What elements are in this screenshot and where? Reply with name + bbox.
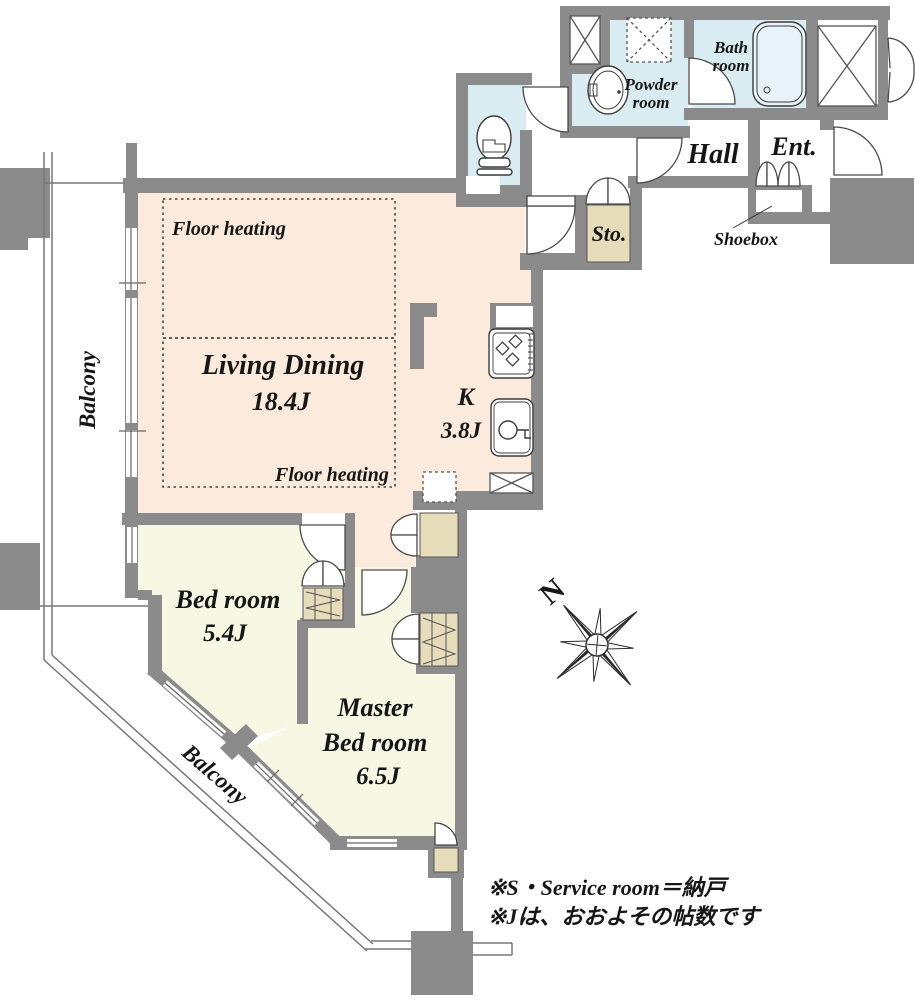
kitchen-sink-icon — [491, 399, 533, 456]
powder-room-label-1: Powder — [624, 75, 678, 94]
shoebox-bifold-doors — [756, 162, 800, 186]
bedroom-label: Bed room — [175, 585, 281, 614]
toilet-door — [523, 87, 568, 132]
living-dining-label: Living Dining — [201, 350, 365, 381]
toilet-icon — [477, 116, 512, 175]
compass: N — [502, 546, 670, 719]
pillar-left-top — [0, 168, 50, 238]
pipe-shaft-left — [570, 16, 600, 64]
pillar-bottom — [411, 931, 473, 995]
note-line-2: ※Jは、おおよその帖数です — [488, 904, 762, 929]
balcony-left-label: Balcony — [75, 350, 100, 430]
washing-machine-space — [627, 18, 671, 62]
bedroom-closet-box — [303, 588, 343, 620]
compass-n-label: N — [533, 572, 571, 611]
floor-plan: N Floor heating Floor heating Living Din… — [0, 0, 915, 1000]
bottom-storage-box — [434, 848, 458, 872]
hall-living-door — [527, 206, 575, 254]
bedroom-area: 5.4J — [203, 620, 248, 647]
floor-heating-label-bottom: Floor heating — [274, 464, 389, 486]
shoebox-label: Shoebox — [714, 229, 778, 249]
pillar-top-right — [830, 178, 914, 264]
bath-room-label-2: room — [713, 56, 750, 75]
master-bedroom-area: 6.5J — [356, 763, 401, 790]
common-corridor-doors — [888, 38, 914, 102]
corridor-closet-box — [420, 513, 458, 557]
master-closet-box — [420, 613, 458, 666]
note-line-1: ※S・Service room＝納戸 — [488, 875, 730, 900]
refrigerator-space — [490, 473, 533, 493]
kitchen-label: K — [457, 384, 477, 411]
entrance-door — [834, 127, 882, 175]
master-bedroom-label-2: Bed room — [322, 728, 428, 757]
hall-label: Hall — [686, 139, 739, 170]
pipe-shaft-right — [818, 26, 876, 106]
bathtub-icon — [753, 22, 806, 106]
pillar-left-mid — [0, 543, 40, 610]
hall-living-door-leaf — [527, 196, 575, 206]
bath-room-label-1: Bath — [713, 38, 748, 57]
kitchen-dotted-space — [423, 472, 456, 502]
sto-bifold-door — [586, 178, 630, 204]
entrance-label: Ent. — [770, 132, 817, 161]
stove-icon — [489, 329, 534, 378]
living-dining-area: 18.4J — [252, 387, 312, 416]
sto-label: Sto. — [592, 221, 627, 246]
powder-room-label-2: room — [633, 93, 670, 112]
floor-heating-label-top: Floor heating — [171, 218, 286, 240]
powder-sink-icon — [588, 66, 628, 114]
kitchen-area: 3.8J — [440, 418, 483, 443]
master-bedroom-label-1: Master — [336, 693, 413, 722]
